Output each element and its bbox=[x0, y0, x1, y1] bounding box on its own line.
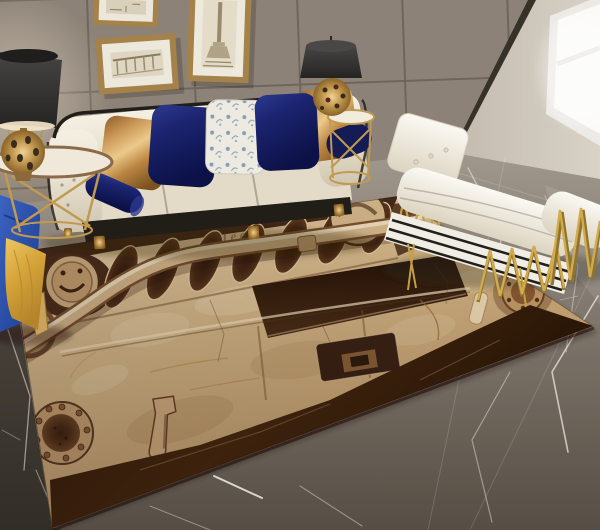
living-room-photo: Jeep bbox=[0, 0, 600, 530]
frame-gate bbox=[95, 33, 184, 100]
lamp-shade bbox=[0, 52, 62, 128]
scene-canvas: Jeep bbox=[0, 0, 600, 530]
shade-top bbox=[0, 49, 58, 63]
base-foot bbox=[14, 172, 32, 181]
frame-column bbox=[186, 0, 256, 88]
frame-small bbox=[93, 0, 158, 27]
pierced-gold-base bbox=[313, 78, 351, 116]
lamp-light bbox=[0, 121, 55, 131]
pillow-navy-right bbox=[254, 92, 320, 171]
shade-top bbox=[306, 40, 356, 52]
